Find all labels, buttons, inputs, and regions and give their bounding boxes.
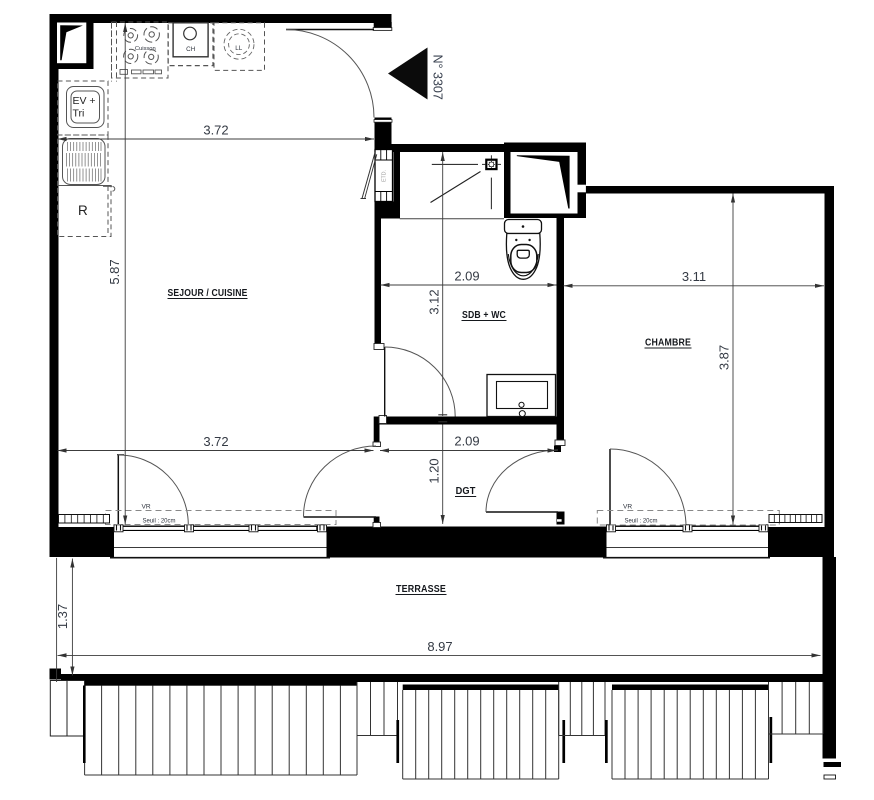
svg-text:VR: VR <box>623 503 632 510</box>
svg-text:Seuil : 20cm: Seuil : 20cm <box>143 519 176 525</box>
svg-text:DGT: DGT <box>456 486 476 497</box>
svg-text:2.09: 2.09 <box>454 269 479 284</box>
svg-text:3.12: 3.12 <box>427 289 442 314</box>
svg-text:3.87: 3.87 <box>717 345 732 370</box>
svg-text:3.72: 3.72 <box>203 434 228 449</box>
svg-text:TERRASSE: TERRASSE <box>396 584 446 595</box>
svg-text:Seuil : 20cm: Seuil : 20cm <box>625 519 658 525</box>
svg-text:VR: VR <box>142 503 151 510</box>
svg-text:N° 3307: N° 3307 <box>431 55 445 100</box>
svg-text:8.97: 8.97 <box>427 639 452 654</box>
svg-text:CH: CH <box>186 46 196 53</box>
svg-text:R: R <box>78 203 88 218</box>
svg-text:Tri: Tri <box>73 108 85 120</box>
svg-text:EV +: EV + <box>73 95 96 107</box>
svg-text:5.87: 5.87 <box>107 259 122 284</box>
svg-text:1.37: 1.37 <box>55 604 70 629</box>
svg-text:ETD.: ETD. <box>382 170 388 182</box>
svg-text:1.20: 1.20 <box>427 458 442 483</box>
svg-text:CHAMBRE: CHAMBRE <box>645 338 691 349</box>
svg-text:3.11: 3.11 <box>682 269 706 284</box>
svg-text:3.72: 3.72 <box>203 123 228 138</box>
svg-text:SDB + WC: SDB + WC <box>462 310 506 321</box>
svg-text:LL: LL <box>235 45 243 52</box>
svg-text:2.09: 2.09 <box>454 434 479 449</box>
svg-text:Cuisson: Cuisson <box>135 46 156 52</box>
svg-text:SEJOUR / CUISINE: SEJOUR / CUISINE <box>168 288 248 299</box>
